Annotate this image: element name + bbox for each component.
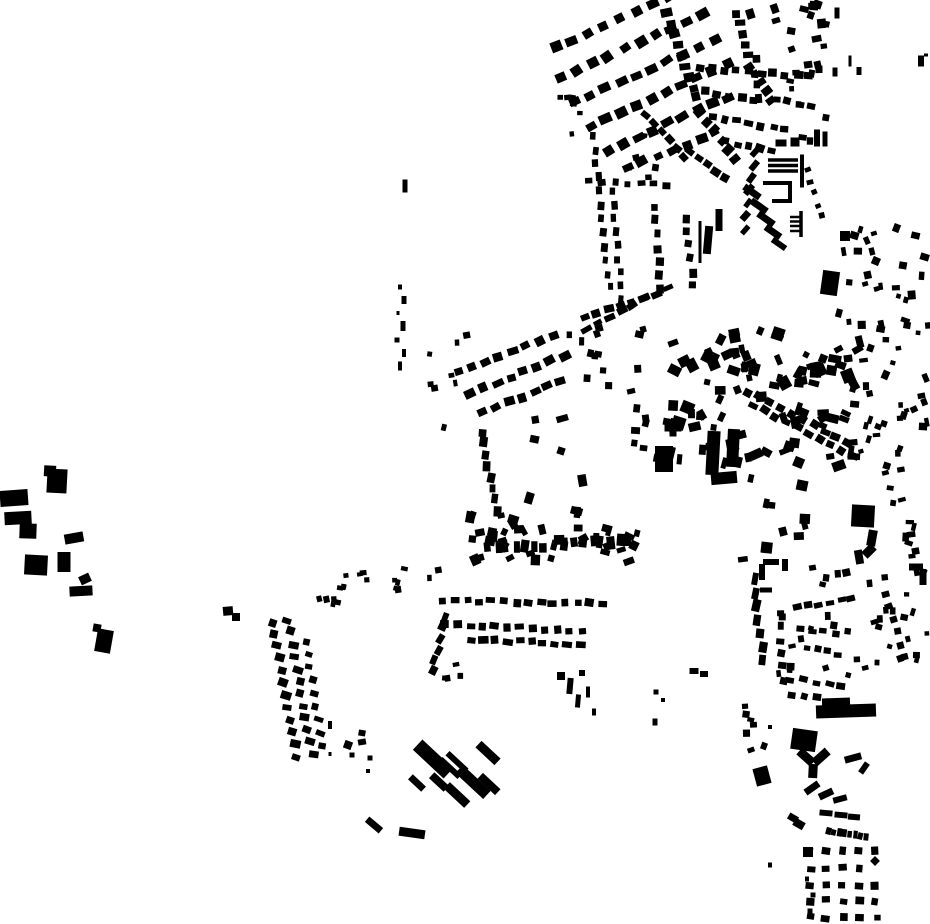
building (855, 914, 864, 921)
building (786, 663, 794, 671)
building (896, 293, 902, 299)
building (779, 613, 786, 620)
building (315, 729, 326, 737)
building (661, 698, 665, 702)
building (630, 5, 643, 18)
building (778, 662, 787, 670)
building (768, 68, 777, 77)
building (820, 43, 827, 49)
building (825, 440, 835, 449)
building (468, 535, 476, 543)
building (771, 17, 780, 25)
building (910, 608, 917, 617)
building (822, 664, 830, 671)
building (716, 209, 723, 231)
building (828, 354, 842, 364)
building (838, 596, 847, 603)
building (708, 123, 720, 135)
building (662, 182, 670, 189)
building (24, 554, 48, 575)
building (554, 71, 567, 83)
building (823, 574, 830, 582)
building (786, 78, 794, 84)
building (360, 570, 367, 576)
building (269, 629, 278, 639)
building (667, 363, 682, 377)
building (232, 613, 240, 621)
building (479, 357, 491, 368)
building (467, 637, 476, 644)
building (530, 361, 542, 372)
building (719, 172, 730, 183)
building (281, 617, 292, 625)
building (811, 188, 818, 195)
building (742, 703, 748, 709)
building (642, 414, 650, 422)
building (790, 216, 800, 219)
building (503, 395, 515, 406)
building (808, 764, 818, 778)
building (463, 331, 471, 339)
building (402, 296, 407, 304)
building (898, 402, 903, 408)
building (767, 147, 776, 154)
building (277, 666, 287, 675)
building (870, 231, 877, 237)
building (798, 635, 805, 643)
building (616, 137, 631, 151)
building (616, 546, 626, 553)
building (316, 595, 323, 602)
building (358, 738, 367, 745)
building (835, 308, 843, 318)
building (843, 354, 852, 362)
building (630, 99, 644, 112)
building (484, 536, 496, 547)
building (611, 214, 617, 222)
map-canvas (0, 0, 930, 924)
building (841, 247, 847, 256)
building (835, 8, 840, 19)
building (832, 794, 847, 803)
building (693, 41, 705, 53)
building (654, 229, 660, 237)
building (549, 39, 563, 53)
building (768, 725, 772, 729)
building (642, 133, 647, 138)
building (520, 539, 530, 553)
building (803, 601, 812, 609)
building (805, 882, 814, 889)
building (705, 431, 720, 476)
building (691, 91, 701, 102)
building (806, 179, 814, 185)
building (752, 55, 760, 63)
building (439, 598, 446, 605)
building (427, 351, 432, 357)
building (717, 411, 726, 422)
building (538, 640, 546, 646)
building (905, 635, 911, 642)
building (712, 90, 722, 99)
building (840, 231, 850, 241)
building (834, 570, 841, 578)
building (399, 827, 426, 840)
building (596, 186, 602, 194)
building (58, 552, 71, 572)
building (585, 121, 597, 133)
building (664, 134, 676, 146)
building (863, 833, 869, 841)
building (490, 402, 502, 413)
building (489, 622, 499, 630)
building (919, 272, 925, 281)
building (413, 740, 453, 779)
building (790, 728, 818, 752)
building (840, 913, 848, 921)
building (738, 93, 747, 102)
building (745, 142, 753, 151)
building (597, 21, 609, 33)
building (751, 587, 760, 600)
building (822, 866, 830, 872)
building (756, 326, 765, 336)
building (855, 896, 864, 904)
building (871, 898, 878, 906)
building (735, 19, 746, 26)
building (358, 729, 366, 736)
building (619, 42, 631, 54)
building (519, 340, 530, 350)
building (866, 579, 872, 587)
building (776, 638, 785, 644)
building (899, 261, 908, 269)
building (662, 0, 676, 3)
building (428, 665, 439, 676)
building (819, 809, 832, 816)
building (814, 434, 825, 445)
building (329, 752, 332, 756)
building (605, 382, 612, 389)
building (695, 7, 711, 22)
building (569, 131, 574, 137)
building (644, 63, 659, 76)
building (584, 598, 594, 607)
building (865, 435, 872, 444)
building (651, 214, 659, 224)
building (772, 199, 788, 203)
building (743, 120, 753, 128)
building (715, 394, 724, 405)
building (813, 602, 823, 609)
building (874, 915, 880, 921)
building (780, 126, 789, 133)
building (577, 111, 583, 115)
building (465, 597, 472, 604)
building (328, 721, 332, 729)
building (350, 753, 355, 758)
building (776, 140, 787, 147)
building (463, 387, 477, 399)
building (711, 471, 738, 485)
building (851, 504, 875, 527)
building (646, 125, 659, 138)
building (458, 673, 464, 679)
building (898, 497, 907, 503)
building (814, 645, 822, 653)
building (631, 427, 640, 434)
building (288, 641, 299, 650)
building (296, 677, 305, 686)
building (69, 585, 92, 596)
building (804, 645, 811, 651)
building (601, 243, 609, 252)
building (855, 882, 864, 889)
building (309, 690, 319, 698)
building (570, 99, 578, 107)
building (818, 212, 825, 219)
building (660, 86, 674, 99)
building (803, 429, 815, 440)
building (846, 594, 856, 602)
building (561, 599, 568, 607)
building (747, 717, 755, 723)
building (608, 283, 613, 290)
building (19, 523, 37, 539)
building (840, 898, 848, 905)
building (916, 330, 921, 335)
building (660, 7, 673, 18)
building (631, 439, 638, 446)
building (807, 866, 816, 873)
building (441, 424, 447, 432)
building (787, 27, 796, 35)
building (742, 710, 750, 718)
building (811, 893, 816, 898)
building (721, 137, 730, 145)
building (615, 75, 629, 88)
building (618, 268, 624, 275)
building (689, 269, 697, 278)
building (366, 769, 370, 773)
building (739, 210, 751, 222)
building (662, 284, 673, 293)
building (705, 443, 711, 451)
building (858, 761, 870, 774)
building (887, 644, 893, 650)
building (803, 61, 812, 69)
building (695, 64, 704, 73)
building (615, 241, 622, 249)
building (770, 3, 780, 14)
building (906, 520, 914, 525)
building (806, 913, 814, 920)
building (557, 95, 563, 100)
building (575, 600, 582, 606)
building (313, 716, 323, 724)
building (602, 256, 608, 263)
building (768, 158, 798, 162)
building (397, 311, 400, 315)
building (585, 178, 593, 184)
building (531, 415, 539, 424)
building (567, 331, 572, 338)
building (576, 641, 586, 648)
building (554, 535, 565, 545)
building (453, 620, 462, 628)
building (435, 566, 443, 573)
building (764, 224, 783, 240)
building (836, 445, 847, 456)
building (94, 628, 114, 653)
building (776, 670, 781, 677)
building (514, 525, 524, 534)
building (854, 847, 862, 855)
building (814, 130, 820, 147)
building (289, 653, 299, 660)
building (796, 101, 802, 108)
building (478, 429, 486, 437)
building (305, 651, 313, 658)
building (798, 134, 807, 141)
building (763, 181, 789, 185)
building (709, 166, 721, 178)
building (919, 252, 930, 261)
building (710, 424, 717, 431)
building (826, 453, 835, 460)
building (753, 614, 762, 626)
building (452, 662, 459, 667)
building (805, 847, 814, 855)
building (548, 330, 559, 341)
building (873, 433, 881, 438)
building (287, 727, 297, 737)
building (738, 344, 745, 353)
building (751, 70, 759, 78)
building (858, 321, 866, 329)
building (610, 188, 616, 195)
building (745, 8, 756, 20)
building (676, 454, 682, 465)
building (451, 597, 460, 603)
building (564, 35, 578, 47)
building (883, 337, 890, 343)
building (640, 110, 651, 121)
building (755, 628, 764, 638)
building (886, 485, 893, 491)
building (600, 50, 615, 65)
building (721, 115, 729, 125)
building (467, 623, 475, 629)
building (704, 379, 711, 386)
building (715, 333, 727, 346)
building (398, 362, 402, 371)
building (724, 93, 733, 101)
building (686, 253, 694, 262)
building (817, 409, 829, 416)
building (818, 788, 835, 801)
building (579, 337, 584, 345)
building (768, 863, 772, 868)
building (846, 439, 858, 446)
building (760, 541, 772, 553)
building (335, 599, 342, 605)
building (903, 321, 911, 329)
building (624, 181, 630, 187)
building (809, 1, 818, 11)
building (770, 124, 778, 131)
building (534, 335, 546, 347)
building (758, 641, 768, 653)
building (725, 438, 739, 452)
building (4, 511, 32, 525)
building (819, 628, 827, 634)
building (592, 147, 599, 155)
building (806, 898, 815, 906)
building (591, 352, 598, 359)
building (741, 41, 750, 48)
building (368, 756, 373, 761)
building (900, 614, 909, 622)
building (612, 178, 619, 186)
building (854, 248, 862, 255)
building (892, 285, 900, 291)
building (826, 600, 835, 606)
building (863, 270, 872, 279)
building (466, 362, 477, 373)
building (807, 137, 813, 144)
building (777, 649, 786, 658)
building (859, 358, 868, 363)
building (792, 603, 802, 611)
building (277, 677, 289, 688)
building (803, 781, 820, 796)
building (751, 599, 762, 613)
building (655, 270, 663, 280)
building (842, 568, 851, 577)
building (720, 67, 729, 75)
building (577, 474, 587, 487)
building (343, 573, 349, 578)
building (829, 431, 841, 441)
building (800, 692, 808, 700)
building (364, 577, 370, 582)
building (402, 349, 406, 357)
building (475, 528, 486, 537)
building (894, 627, 902, 635)
building (529, 624, 537, 632)
building (285, 716, 295, 725)
building (554, 625, 562, 634)
building (531, 555, 541, 566)
building (537, 598, 547, 605)
building (834, 652, 842, 658)
building (802, 351, 810, 359)
building (849, 56, 852, 67)
building (790, 230, 800, 233)
building (593, 533, 599, 540)
building (787, 691, 796, 699)
building (881, 470, 889, 476)
building (529, 435, 539, 444)
building (401, 566, 409, 572)
building (924, 631, 929, 636)
building (646, 0, 660, 10)
building (819, 581, 826, 587)
building (547, 600, 556, 607)
building (517, 392, 528, 403)
building (756, 122, 765, 132)
